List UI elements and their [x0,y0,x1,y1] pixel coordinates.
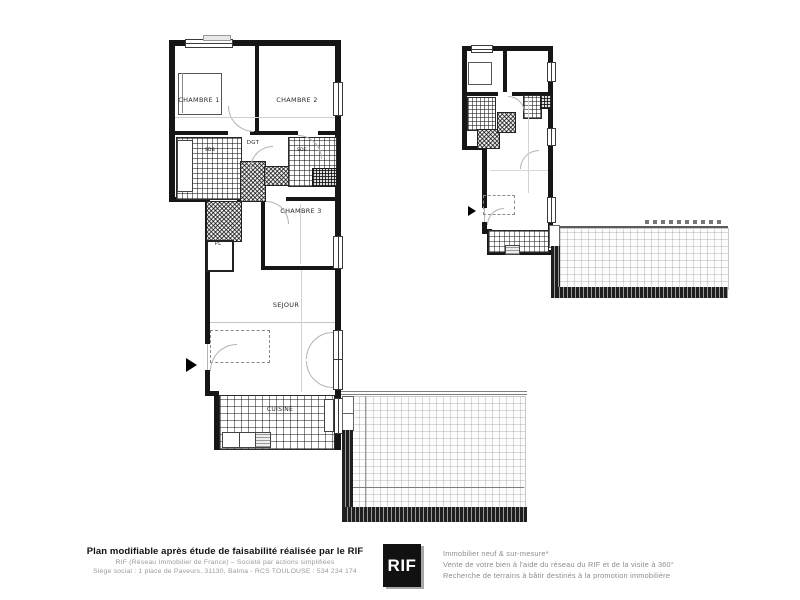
dimension-line [528,98,529,193]
room-label-chambre3: CHAMBRE 3 [272,208,330,215]
room-label-sejour: SEJOUR [262,302,310,309]
corridor-hatched-area [206,201,242,242]
room-label-chambre1: CHAMBRE 1 [170,97,228,104]
kitchen-appliance [239,432,256,448]
footer-service-line: Immobilier neuf & sur-mesure* [443,549,703,560]
terrace-pillar [342,413,354,431]
footer-address-line: Siège social : 1 place de Paveurs, 31130… [82,568,368,575]
door-opening [228,131,250,135]
terrace-railing-ticks [645,220,721,224]
window-sill [203,35,231,41]
hall-hatched-area [497,112,516,133]
terrace-floor-grid [552,228,729,290]
rif-logo-text: RIF [388,556,417,576]
dimension-line [490,170,548,171]
bed-pillow-line [182,73,183,113]
terrace-edge-line [341,391,527,392]
terrace-floor-grid [344,396,526,510]
terrace-edge-line [341,394,527,395]
door-arc [228,106,254,132]
bed [178,73,222,115]
room-label-pl: PL [208,242,228,247]
dimension-line [301,270,302,392]
terrace-border-hatch [344,507,527,522]
wall-segment [255,46,259,135]
room-label-dgt: DGT [242,141,264,147]
window-icon [333,82,343,116]
wall-segment [169,40,175,202]
room-label-cuisine: CUISINE [258,407,302,413]
dimension-line [365,396,366,507]
bed [468,62,492,85]
terrace-pillar [549,225,560,248]
entrance-arrow-icon [468,206,476,216]
window-icon [471,45,493,53]
bathtub [177,140,193,192]
footer-right-block: Immobilier neuf & sur-mesure* Vente de v… [443,549,703,581]
dimension-line [353,487,524,488]
door-arc [306,361,333,388]
room-label-sdb: SDB [200,149,220,154]
door-arc [520,150,539,169]
bathroom-tiled-area [467,97,496,131]
footer-service-line: Vente de votre bien à l'aide du réseau d… [443,560,703,571]
dimension-line [210,322,335,323]
footer-left-block: Plan modifiable après étude de faisabili… [82,546,368,575]
door-arc [306,332,333,359]
shower-tray [312,168,337,187]
window-icon [333,359,343,390]
footer-service-line: Recherche de terrains à bâtir destinés à… [443,571,703,582]
wall-segment [261,201,265,266]
terrace-pillar [342,396,354,414]
kitchen-appliance-oven [505,245,520,255]
terrace-border-hatch [556,287,728,298]
shower-tray [540,95,552,109]
window-icon [547,62,556,82]
wall-segment [503,46,507,96]
entry-threshold-line [207,344,208,370]
window-icon [547,128,556,146]
window-icon [333,236,343,269]
window-icon [547,197,556,223]
window-icon [333,330,343,360]
entrance-arrow-icon [186,358,197,372]
rif-logo: RIF [383,544,421,587]
footer-company-line: RIF (Réseau Immobilier de France) – Soci… [82,559,368,566]
kitchen-counter [324,399,334,432]
footer-title: Plan modifiable après étude de faisabili… [82,546,368,557]
floor-plan-page: CHAMBRE 1 CHAMBRE 2 CHAMBRE 3 DGT SDB SD… [0,0,800,600]
door-arc [250,146,273,169]
room-label-chambre2: CHAMBRE 2 [268,97,326,104]
dimension-line [175,117,335,118]
room-label-sde: SDE [292,149,312,154]
kitchen-appliance-oven [255,432,271,448]
